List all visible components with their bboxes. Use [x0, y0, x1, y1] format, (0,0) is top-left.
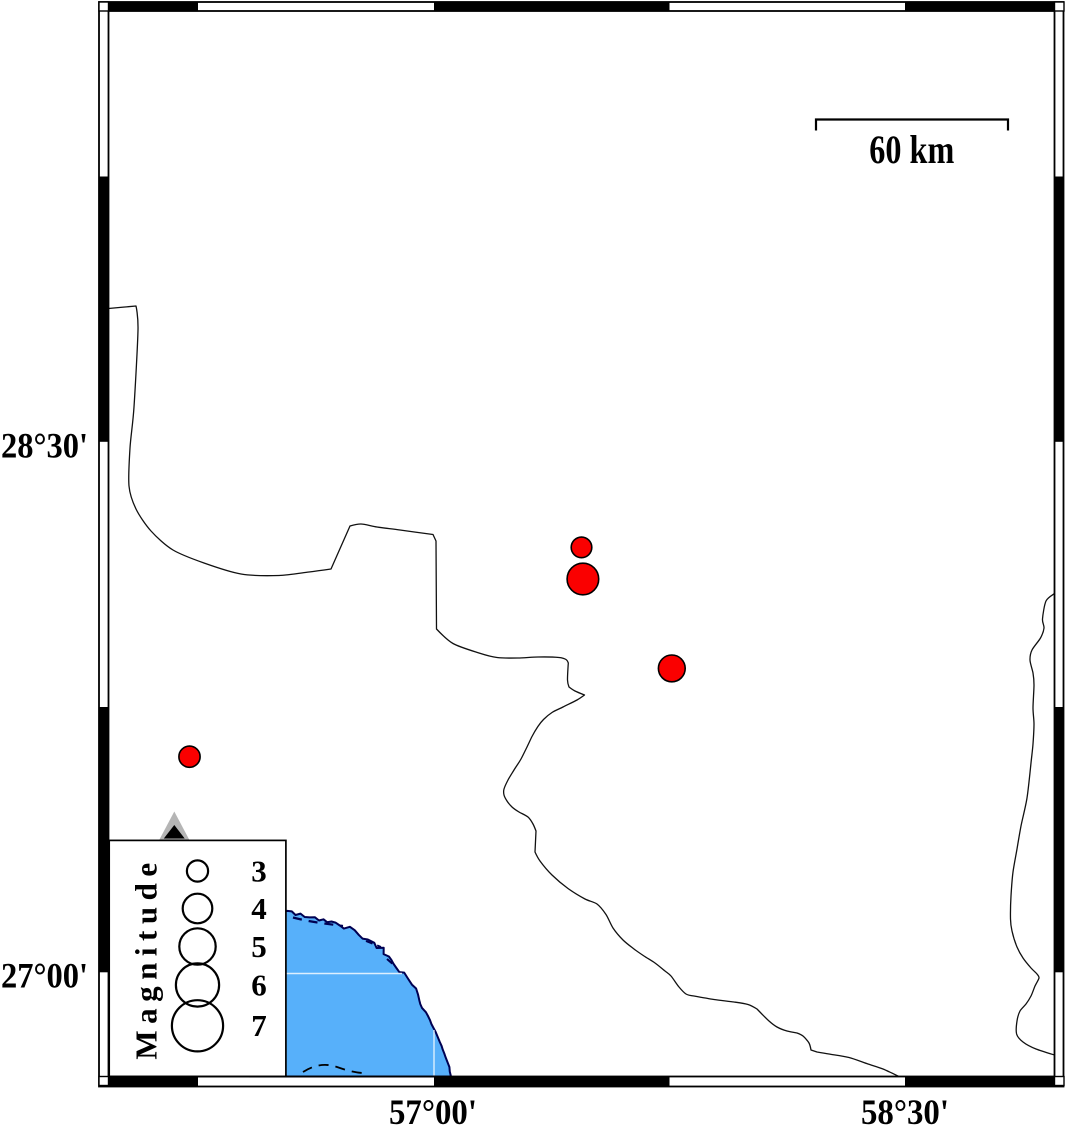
svg-text:57°00': 57°00' — [389, 1092, 477, 1126]
svg-text:27°00': 27°00' — [1, 956, 88, 996]
svg-text:3: 3 — [251, 853, 267, 888]
svg-text:5: 5 — [251, 929, 267, 964]
svg-text:60 km: 60 km — [869, 127, 954, 172]
svg-text:6: 6 — [251, 967, 267, 1002]
svg-text:4: 4 — [251, 891, 267, 926]
svg-text:7: 7 — [251, 1008, 267, 1043]
svg-text:28°30': 28°30' — [1, 425, 88, 465]
svg-text:Magnitude: Magnitude — [129, 856, 164, 1059]
svg-text:58°30': 58°30' — [861, 1092, 949, 1126]
